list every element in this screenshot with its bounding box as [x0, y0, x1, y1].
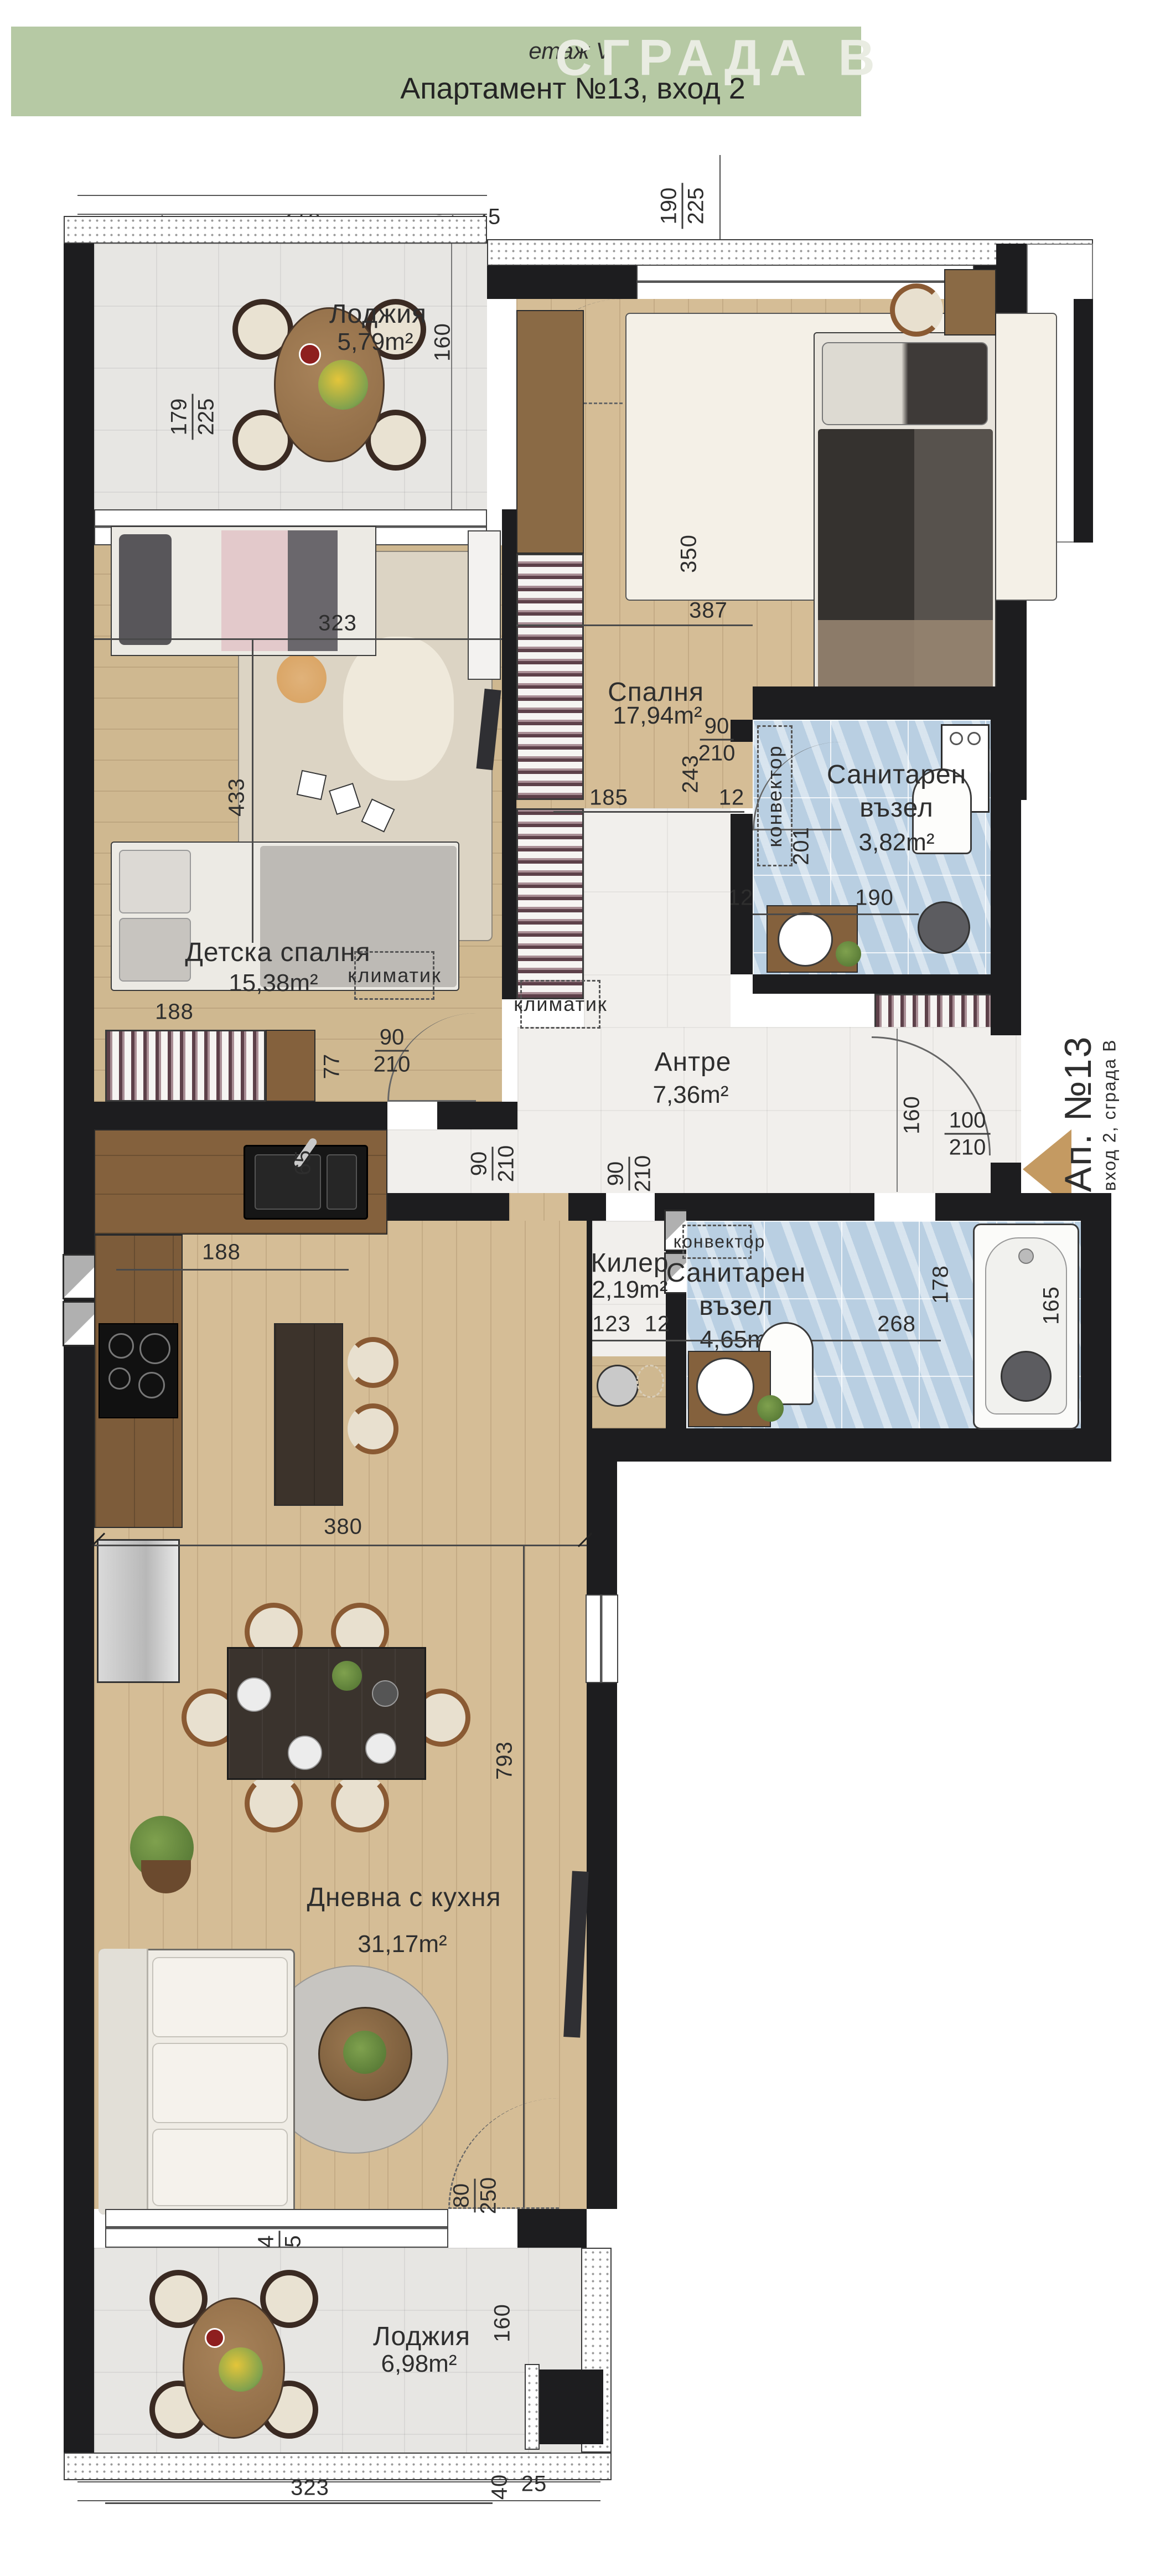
- dim-188-kids: 188: [155, 1000, 194, 1025]
- kids-bed2-pillow: [119, 918, 191, 982]
- bar-stool: [348, 1337, 398, 1388]
- wall-bath2-right: [1081, 1193, 1111, 1462]
- kitchen-sink-bowl-small: [327, 1154, 357, 1210]
- dining-chair: [245, 1774, 303, 1832]
- flower-bouquet: [318, 360, 368, 410]
- washer-knob: [950, 732, 963, 745]
- washer-knob: [967, 732, 981, 745]
- room-area-hall: 7,36m²: [653, 1081, 729, 1109]
- dining-chair: [331, 1774, 389, 1832]
- corridor-closet: [516, 808, 584, 999]
- room-name-hall: Антре: [655, 1046, 732, 1079]
- dim-40-bottom: 40: [488, 2474, 512, 2500]
- coffee-cup-2: [205, 2328, 225, 2348]
- sofa-cushion: [152, 1957, 288, 2037]
- sofa-cushion: [152, 2043, 288, 2123]
- dim-433: 433: [225, 778, 250, 817]
- dim-178: 178: [929, 1265, 954, 1304]
- coffee-table-plant: [343, 2031, 386, 2074]
- plate: [288, 1736, 322, 1770]
- kitchen-island: [274, 1323, 343, 1506]
- bath1-plant: [836, 941, 861, 967]
- dim-12-closet: 12: [719, 786, 745, 811]
- bed-throw: [818, 620, 993, 698]
- dim-line-433: [252, 638, 253, 943]
- label-ac-hall: климатик: [514, 993, 608, 1016]
- plate: [237, 1677, 271, 1712]
- cooktop-burner: [108, 1333, 134, 1359]
- dining-table: [227, 1647, 426, 1780]
- entrance-apartment-label: Ап. №13: [1057, 1036, 1100, 1193]
- dim-90-210-storage: 90210: [603, 1151, 656, 1197]
- loggia-corner-hatch: [525, 2364, 540, 2450]
- bathtub-drain: [1018, 1248, 1034, 1264]
- wall-kids-bottom-b: [437, 1102, 517, 1129]
- dim-160-loggia: 160: [431, 323, 455, 362]
- bedroom-wall-panel: [516, 310, 584, 554]
- dim-100-210-entrance: 100210: [945, 1108, 991, 1160]
- bar-stool: [348, 1403, 398, 1454]
- wall-bath2-top-a: [686, 1193, 874, 1221]
- wall-bedroom-top: [487, 266, 636, 299]
- bedroom-wardrobe: [516, 554, 584, 800]
- room-area-kids: 15,38m²: [229, 969, 318, 997]
- room-name-kids: Детска спалня: [185, 936, 370, 969]
- room-area-bedroom: 17,94m²: [613, 702, 702, 730]
- bath1-sink: [778, 912, 833, 967]
- wall-hall-right-bottom: [991, 1163, 1021, 1193]
- dim-90-210-kids-door: 90210: [369, 1025, 415, 1077]
- room-name-bath2: Санитарен възел: [653, 1257, 819, 1323]
- wall-bath1-right: [991, 686, 1021, 974]
- entrance-sub-label: вход 2, сграда В: [1100, 1039, 1120, 1191]
- dim-243: 243: [679, 755, 703, 793]
- room-name-living: Дневна с кухня: [307, 1881, 501, 1914]
- wall-bath1-bottom: [753, 974, 1021, 994]
- label-convector-bath2: конвектор: [674, 1232, 766, 1252]
- loggia-top-parapet: [64, 216, 487, 244]
- cooktop-burner: [108, 1367, 131, 1390]
- label-convector-bath1: конвектор: [763, 745, 786, 847]
- header-building: СГРАДА В: [555, 29, 884, 87]
- wall-bath2-top-b: [935, 1193, 1081, 1221]
- dim-80-250-balcony: 80250: [449, 2173, 501, 2219]
- dim-line-380: [94, 1545, 587, 1546]
- dim-line-190-bath1: [753, 913, 919, 915]
- room-area-living: 31,17m²: [358, 1930, 447, 1958]
- cooktop-burner: [139, 1333, 170, 1364]
- wall-hall-right-top: [991, 994, 1021, 1035]
- dim-123: 123: [592, 1312, 631, 1337]
- dim-160-loggia2: 160: [490, 2304, 515, 2342]
- dim-line-185: [553, 811, 744, 813]
- wall-living-right-b: [587, 1683, 617, 2209]
- storage-swirl: [636, 1365, 664, 1398]
- flower-bouquet-2: [219, 2347, 263, 2392]
- kids-wardrobe: [105, 1030, 266, 1102]
- wall-balcony-door-right: [517, 2209, 587, 2248]
- cooktop-burner: [138, 1372, 165, 1398]
- dim-179-225: 179225: [167, 394, 219, 440]
- dim-188-kitchen: 188: [202, 1240, 241, 1265]
- plate: [365, 1733, 396, 1764]
- bath2-sink: [696, 1357, 754, 1416]
- loggia-top-railing: [77, 195, 487, 215]
- wall-bath1-top: [753, 686, 996, 720]
- dim-268: 268: [877, 1312, 916, 1337]
- kids-bed-pillow: [119, 534, 172, 645]
- dim-line-323-bottom: [105, 2502, 493, 2504]
- loggia-corner-block: [540, 2369, 603, 2444]
- living-floor-passage: [509, 1193, 568, 1221]
- table-plant: [332, 1661, 362, 1691]
- storage-boiler: [597, 1365, 639, 1407]
- fridge: [97, 1539, 180, 1683]
- bedroom-desk: [944, 269, 996, 335]
- facade-pillar: [1074, 299, 1093, 543]
- sofa-cushion: [152, 2129, 288, 2206]
- sofa-back: [99, 1949, 148, 2214]
- dim-201: 201: [789, 827, 814, 865]
- kids-bed2-pillow: [119, 850, 191, 913]
- room-area-loggia-bottom: 6,98m²: [381, 2350, 457, 2378]
- wall-storage-top-a: [592, 1193, 606, 1221]
- bedroom-desk-chair: [890, 283, 943, 337]
- kids-wardrobe-wood: [266, 1030, 315, 1102]
- dim-65: 65: [291, 1150, 316, 1176]
- dim-line-387: [516, 624, 753, 626]
- dim-185: 185: [589, 786, 628, 811]
- bath2-plant: [757, 1395, 784, 1422]
- window-living-right: [586, 1594, 618, 1683]
- kids-desk: [468, 530, 501, 680]
- dim-90-210-hall-living: 90210: [467, 1141, 519, 1187]
- dim-380: 380: [324, 1515, 362, 1540]
- dim-25-bottom: 25: [521, 2472, 547, 2497]
- kids-rug-bear: [343, 637, 454, 781]
- kids-rug-flower: [277, 653, 327, 703]
- room-name-loggia-top: Лоджия: [329, 298, 427, 331]
- bath1-shower-head: [918, 901, 970, 954]
- dim-165: 165: [1039, 1286, 1064, 1325]
- dim-387: 387: [689, 598, 728, 623]
- dim-323-bottom: 323: [291, 2476, 329, 2501]
- wall-kids-bedroom: [502, 509, 516, 999]
- wall-left-exterior: [64, 244, 94, 2453]
- room-area-bath1: 3,82m²: [859, 829, 935, 856]
- dim-line-188-kitchen: [116, 1269, 349, 1271]
- wall-bath2-bottom: [568, 1428, 1111, 1462]
- dim-line-268: [686, 1340, 941, 1341]
- bed-pillows: [822, 342, 988, 425]
- dim-190-225: 190225: [656, 183, 709, 229]
- dim-190-bath1: 190: [855, 886, 894, 911]
- room-name-loggia-bottom: Лоджия: [373, 2320, 470, 2353]
- loggia-inner-line: [451, 244, 452, 509]
- room-name-bath1: Санитарен възел: [825, 758, 969, 825]
- wall-kids-bottom-a: [64, 1102, 387, 1129]
- dim-793: 793: [493, 1741, 517, 1780]
- dim-350: 350: [677, 534, 702, 573]
- cooktop: [99, 1323, 178, 1418]
- dim-12-bath1: 12: [728, 886, 754, 911]
- dim-323-kids: 323: [318, 611, 357, 636]
- toy-block: [297, 770, 327, 801]
- plate: [372, 1680, 398, 1707]
- dim-line-123: [592, 1340, 686, 1341]
- dim-77: 77: [320, 1054, 345, 1080]
- dim-line-323-kids: [94, 638, 502, 640]
- bath2-shower-head: [1001, 1351, 1052, 1402]
- label-ac-kids: климатик: [348, 964, 442, 987]
- wall-living-right-a: [587, 1462, 617, 1594]
- coffee-cup: [299, 343, 321, 365]
- room-area-loggia-top: 5,79m²: [338, 328, 413, 356]
